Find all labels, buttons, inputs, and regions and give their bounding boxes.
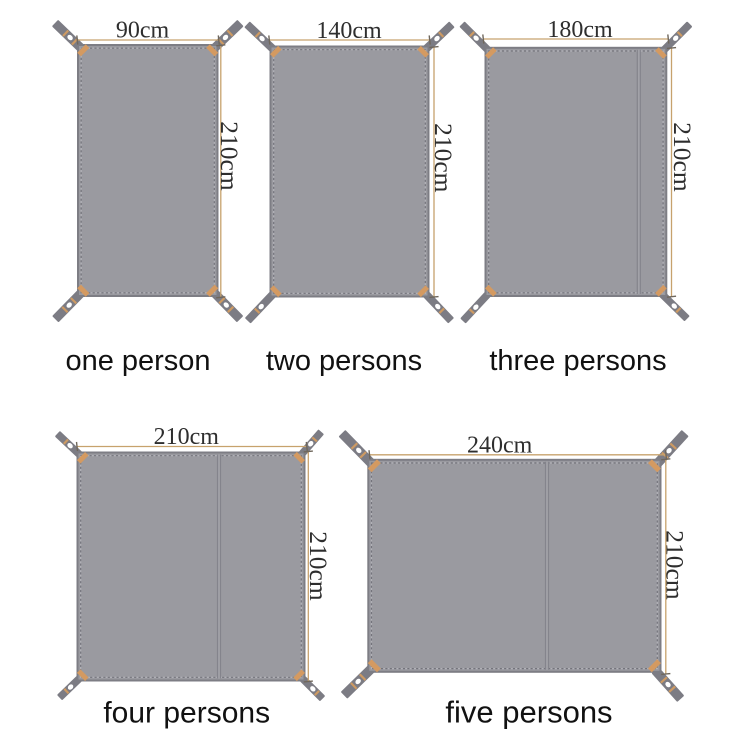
svg-text:90cm: 90cm bbox=[116, 18, 170, 44]
svg-text:210cm: 210cm bbox=[154, 424, 220, 450]
svg-text:210cm: 210cm bbox=[304, 531, 333, 601]
svg-text:one person: one person bbox=[65, 345, 210, 377]
svg-text:two persons: two persons bbox=[266, 345, 422, 377]
svg-text:five persons: five persons bbox=[445, 695, 612, 730]
svg-text:four persons: four persons bbox=[103, 697, 270, 730]
svg-text:210cm: 210cm bbox=[661, 530, 690, 600]
svg-text:180cm: 180cm bbox=[547, 17, 613, 43]
svg-text:210cm: 210cm bbox=[215, 121, 244, 191]
svg-text:210cm: 210cm bbox=[429, 123, 458, 193]
svg-text:210cm: 210cm bbox=[668, 122, 697, 192]
svg-text:140cm: 140cm bbox=[316, 18, 382, 44]
svg-text:three persons: three persons bbox=[489, 345, 666, 377]
svg-text:240cm: 240cm bbox=[467, 432, 533, 458]
